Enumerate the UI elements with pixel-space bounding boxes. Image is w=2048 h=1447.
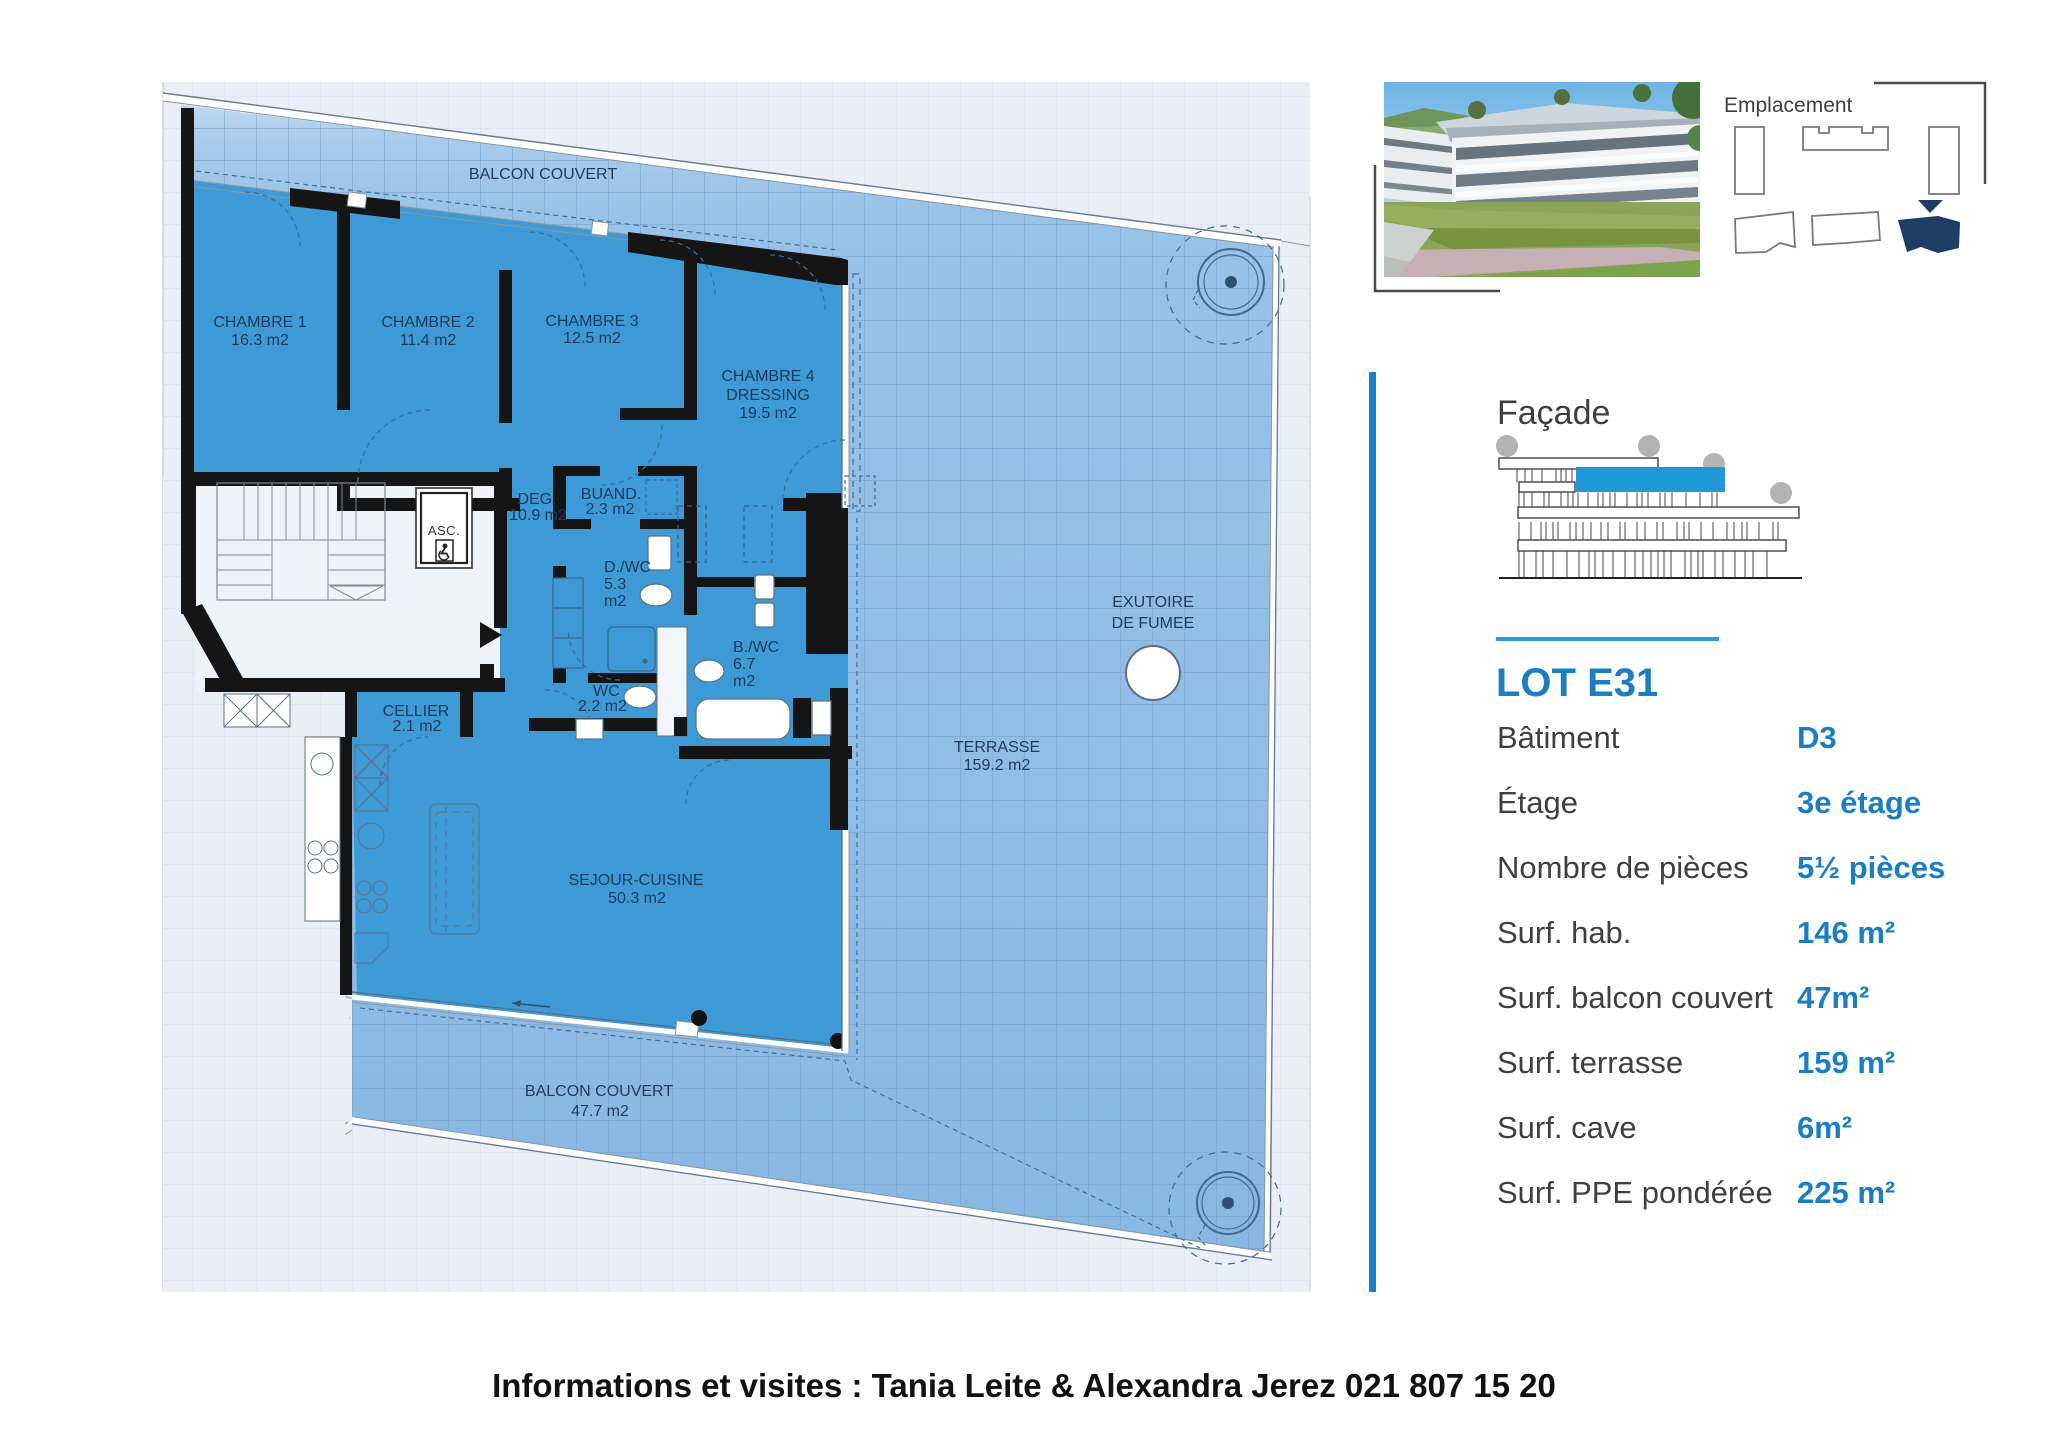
svg-text:225 m²: 225 m² bbox=[1797, 1175, 1895, 1210]
svg-text:12.5 m2: 12.5 m2 bbox=[563, 330, 621, 347]
svg-text:2.1 m2: 2.1 m2 bbox=[393, 718, 442, 735]
svg-text:Bâtiment: Bâtiment bbox=[1497, 720, 1620, 755]
svg-text:DE FUMEE: DE FUMEE bbox=[1112, 615, 1195, 632]
svg-text:6.7: 6.7 bbox=[733, 656, 755, 673]
svg-text:10.9 m2: 10.9 m2 bbox=[509, 507, 567, 524]
svg-text:50.3 m2: 50.3 m2 bbox=[608, 890, 666, 907]
svg-text:CHAMBRE 3: CHAMBRE 3 bbox=[545, 313, 638, 330]
svg-text:BALCON COUVERT: BALCON COUVERT bbox=[469, 166, 617, 183]
svg-text:CHAMBRE 1: CHAMBRE 1 bbox=[213, 314, 306, 331]
svg-text:ASC.: ASC. bbox=[428, 523, 460, 538]
svg-text:Surf. PPE pondérée: Surf. PPE pondérée bbox=[1497, 1175, 1773, 1210]
svg-text:Étage: Étage bbox=[1497, 785, 1578, 820]
svg-text:159.2 m2: 159.2 m2 bbox=[964, 757, 1031, 774]
svg-text:19.5 m2: 19.5 m2 bbox=[739, 405, 797, 422]
svg-text:16.3 m2: 16.3 m2 bbox=[231, 332, 289, 349]
svg-text:159 m²: 159 m² bbox=[1797, 1045, 1895, 1080]
svg-text:47.7 m2: 47.7 m2 bbox=[571, 1103, 629, 1120]
svg-text:CHAMBRE 2: CHAMBRE 2 bbox=[381, 314, 474, 331]
svg-text:BALCON COUVERT: BALCON COUVERT bbox=[525, 1083, 673, 1100]
svg-text:LOT E31: LOT E31 bbox=[1496, 661, 1658, 705]
svg-text:3e étage: 3e étage bbox=[1797, 785, 1921, 820]
svg-text:Emplacement: Emplacement bbox=[1724, 94, 1853, 117]
svg-text:Surf. cave: Surf. cave bbox=[1497, 1110, 1637, 1145]
svg-text:Surf. balcon couvert: Surf. balcon couvert bbox=[1497, 980, 1773, 1015]
svg-text:Informations et visites : Tani: Informations et visites : Tania Leite & … bbox=[492, 1367, 1556, 1404]
svg-text:2.3 m2: 2.3 m2 bbox=[586, 501, 635, 518]
svg-text:Surf. hab.: Surf. hab. bbox=[1497, 915, 1631, 950]
svg-text:D./WC: D./WC bbox=[604, 559, 651, 576]
svg-text:Surf. terrasse: Surf. terrasse bbox=[1497, 1045, 1683, 1080]
svg-text:DRESSING: DRESSING bbox=[726, 387, 810, 404]
svg-text:CHAMBRE 4: CHAMBRE 4 bbox=[721, 368, 814, 385]
svg-text:2.2 m2: 2.2 m2 bbox=[578, 698, 627, 715]
svg-text:B./WC: B./WC bbox=[733, 639, 779, 656]
svg-text:DEG.: DEG. bbox=[517, 491, 556, 508]
svg-text:5.3: 5.3 bbox=[604, 576, 626, 593]
svg-text:Façade: Façade bbox=[1497, 394, 1610, 432]
svg-text:47m²: 47m² bbox=[1797, 980, 1869, 1015]
svg-text:m2: m2 bbox=[604, 593, 626, 610]
svg-text:Nombre de pièces: Nombre de pièces bbox=[1497, 850, 1749, 885]
svg-text:11.4 m2: 11.4 m2 bbox=[400, 332, 457, 349]
svg-text:SEJOUR-CUISINE: SEJOUR-CUISINE bbox=[568, 872, 703, 889]
svg-text:m2: m2 bbox=[733, 673, 755, 690]
svg-text:5½ pièces: 5½ pièces bbox=[1797, 850, 1945, 885]
svg-text:D3: D3 bbox=[1797, 720, 1837, 755]
svg-text:146 m²: 146 m² bbox=[1797, 915, 1895, 950]
svg-text:EXUTOIRE: EXUTOIRE bbox=[1112, 594, 1194, 611]
svg-text:TERRASSE: TERRASSE bbox=[954, 739, 1040, 756]
svg-text:6m²: 6m² bbox=[1797, 1110, 1852, 1145]
